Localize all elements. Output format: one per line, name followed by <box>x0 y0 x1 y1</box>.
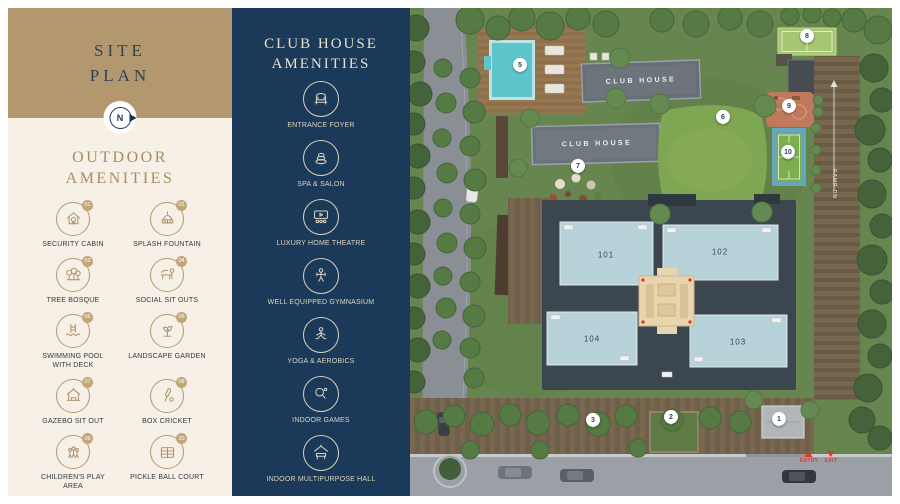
landscape-garden-icon: 06 <box>150 314 184 348</box>
siteplan-marker-6: 6 <box>716 110 730 124</box>
outdoor-amenities-grid: 01SECURITY CABIN02SPLASH FOUNTAIN03TREE … <box>13 202 227 492</box>
siteplan-marker-8: 8 <box>800 29 814 43</box>
splash-fountain-icon: 02 <box>150 202 184 236</box>
siteplan-marker-5: 5 <box>513 58 527 72</box>
amenity-number-badge: 03 <box>82 256 93 267</box>
amenity-label: SECURITY CABIN <box>42 240 103 249</box>
club-amenity-item: SPA & SALON <box>266 140 376 189</box>
spa-salon-icon <box>303 140 339 176</box>
club-amenity-label: YOGA & AEROBICS <box>266 357 376 366</box>
tower-number-102: 102 <box>712 248 728 257</box>
marker-number: 10 <box>784 148 792 155</box>
gazebo-icon: 07 <box>56 379 90 413</box>
outdoor-amenity-item: 01SECURITY CABIN <box>33 202 113 249</box>
outdoor-amenities-heading: OUTDOOR AMENITIES <box>40 148 200 190</box>
club-amenity-item: WELL EQUIPPED GYMNASIUM <box>266 258 376 307</box>
marker-number: 7 <box>576 162 580 169</box>
marker-number: 9 <box>787 102 791 109</box>
amenity-label: LANDSCAPE GARDEN <box>128 352 206 361</box>
ramp-label: RAMP DN <box>831 169 837 199</box>
outdoor-amenity-item: 07GAZEBO SIT OUT <box>33 379 113 426</box>
tower-number-101: 101 <box>598 251 614 260</box>
site-plan-header: SITE PLAN N <box>8 8 232 118</box>
club-amenity-label: WELL EQUIPPED GYMNASIUM <box>266 298 376 307</box>
exit-label: EXIT <box>825 458 838 464</box>
club-amenity-label: SPA & SALON <box>266 180 376 189</box>
marker-number: 3 <box>591 416 595 423</box>
club-amenity-item: ENTRANCE FOYER <box>266 81 376 130</box>
amenity-label: BOX CRICKET <box>142 417 192 426</box>
club-house-heading: CLUB HOUSE AMENITIES <box>251 34 391 75</box>
outdoor-amenity-item: 08BOX CRICKET <box>127 379 207 426</box>
multipurpose-hall-icon <box>303 435 339 471</box>
tree-bosque-icon: 03 <box>56 258 90 292</box>
outdoor-amenity-item: 06LANDSCAPE GARDEN <box>127 314 207 370</box>
compass-north-letter: N <box>117 113 124 123</box>
siteplan-marker-1: 1 <box>772 412 786 426</box>
outdoor-amenity-item: 03TREE BOSQUE <box>33 258 113 305</box>
exit-arrow-icon <box>827 451 835 457</box>
outdoor-amenities-section: OUTDOOR AMENITIES 01SECURITY CABIN02SPLA… <box>8 118 232 496</box>
amenity-number-badge: 10 <box>176 433 187 444</box>
swimming-pool-icon: 05 <box>56 314 90 348</box>
club-amenity-item: YOGA & AEROBICS <box>266 317 376 366</box>
siteplan-marker-9: 9 <box>782 99 796 113</box>
compass-needle-icon <box>129 114 136 122</box>
entrance-foyer-icon <box>303 81 339 117</box>
club-house-panel: CLUB HOUSE AMENITIES ENTRANCE FOYERSPA &… <box>232 8 410 496</box>
amenity-label: CHILDREN'S PLAY AREA <box>34 473 112 491</box>
amenity-number-badge: 02 <box>176 200 187 211</box>
club-amenity-label: INDOOR MULTIPURPOSE HALL <box>266 475 376 484</box>
marker-number: 5 <box>518 61 522 68</box>
siteplan-marker-7: 7 <box>571 159 585 173</box>
amenity-label: SOCIAL SIT OUTS <box>136 296 199 305</box>
amenity-number-badge: 09 <box>82 433 93 444</box>
club-amenity-item: LUXURY HOME THEATRE <box>266 199 376 248</box>
indoor-games-icon <box>303 376 339 412</box>
club-house-building-label: CLUB HOUSE <box>562 140 632 149</box>
amenity-label: GAZEBO SIT OUT <box>42 417 103 426</box>
club-house-amenities-list: ENTRANCE FOYERSPA & SALONLUXURY HOME THE… <box>232 81 410 485</box>
marker-number: 2 <box>669 413 673 420</box>
amenity-label: SWIMMING POOL WITH DECK <box>34 352 112 370</box>
childrens-play-icon: 09 <box>56 435 90 469</box>
gymnasium-icon <box>303 258 339 294</box>
marker-number: 6 <box>721 113 725 120</box>
marker-number: 1 <box>777 415 781 422</box>
tower-number-104: 104 <box>584 335 600 344</box>
box-cricket-icon: 08 <box>150 379 184 413</box>
compass-icon: N <box>104 101 137 134</box>
page-title: SITE PLAN <box>74 38 166 89</box>
club-amenity-item: INDOOR MULTIPURPOSE HALL <box>266 435 376 484</box>
siteplan-marker-2: 2 <box>664 410 678 424</box>
amenity-number-badge: 04 <box>176 256 187 267</box>
marker-number: 8 <box>805 32 809 39</box>
left-panel: SITE PLAN N OUTDOOR AMENITIES 01SECURITY… <box>8 8 232 496</box>
siteplan-overlay: CLUB HOUSECLUB HOUSE10110210410312356789… <box>410 8 892 496</box>
security-cabin-icon: 01 <box>56 202 90 236</box>
pickle-ball-icon: 10 <box>150 435 184 469</box>
siteplan-area: CLUB HOUSECLUB HOUSE10110210410312356789… <box>410 8 892 496</box>
club-amenity-item: INDOOR GAMES <box>266 376 376 425</box>
home-theatre-icon <box>303 199 339 235</box>
entry-gate: ENTRY <box>800 451 819 464</box>
site-plan-page: SITE PLAN N OUTDOOR AMENITIES 01SECURITY… <box>0 0 900 504</box>
entry-arrow-icon <box>805 451 813 457</box>
amenity-label: TREE BOSQUE <box>47 296 100 305</box>
amenity-label: SPLASH FOUNTAIN <box>133 240 201 249</box>
siteplan-marker-10: 10 <box>781 145 795 159</box>
siteplan-marker-3: 3 <box>586 413 600 427</box>
tower-number-103: 103 <box>730 338 746 347</box>
amenity-number-badge: 08 <box>176 377 187 388</box>
club-amenity-label: LUXURY HOME THEATRE <box>266 239 376 248</box>
outdoor-amenity-item: 02SPLASH FOUNTAIN <box>127 202 207 249</box>
club-amenity-label: ENTRANCE FOYER <box>266 121 376 130</box>
club-house-building-label: CLUB HOUSE <box>606 76 676 85</box>
amenity-number-badge: 06 <box>176 312 187 323</box>
amenity-number-badge: 07 <box>82 377 93 388</box>
outdoor-amenity-item: 09CHILDREN'S PLAY AREA <box>33 435 113 491</box>
outdoor-amenity-item: 04SOCIAL SIT OUTS <box>127 258 207 305</box>
amenity-label: PICKLE BALL COURT <box>130 473 204 482</box>
exit-gate: EXIT <box>825 451 838 464</box>
amenity-number-badge: 05 <box>82 312 93 323</box>
social-sit-outs-icon: 04 <box>150 258 184 292</box>
amenity-number-badge: 01 <box>82 200 93 211</box>
club-amenity-label: INDOOR GAMES <box>266 416 376 425</box>
entry-label: ENTRY <box>800 458 819 464</box>
outdoor-amenity-item: 05SWIMMING POOL WITH DECK <box>33 314 113 370</box>
yoga-icon <box>303 317 339 353</box>
outdoor-amenity-item: 10PICKLE BALL COURT <box>127 435 207 491</box>
